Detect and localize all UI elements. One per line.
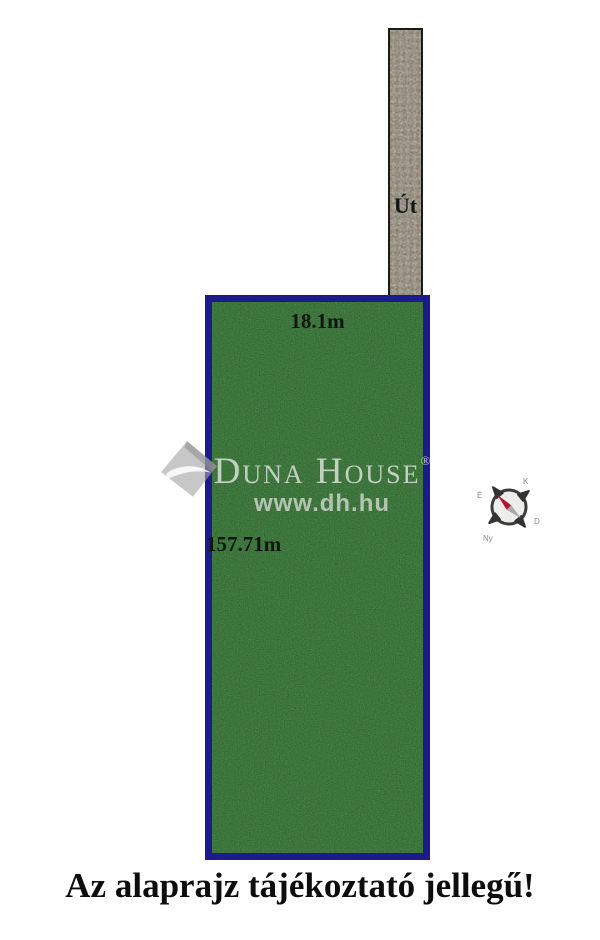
compass-icon: É K D Ny (471, 469, 547, 545)
compass-east-label: K (523, 477, 529, 486)
disclaimer-text: Az alaprajz tájékoztató jellegű! (0, 866, 600, 906)
compass-north-label: É (477, 491, 482, 500)
duna-house-logo-icon (158, 438, 220, 500)
compass-south-label: D (534, 517, 540, 526)
site-plan-image: Út 18.1m 157.71m (0, 0, 600, 940)
grass-texture (212, 302, 423, 853)
road-strip: Út (388, 28, 423, 298)
road-texture (390, 30, 421, 298)
compass-west-label: Ny (483, 534, 493, 543)
road-label: Út (390, 193, 421, 219)
plot-rectangle: 18.1m 157.71m (205, 295, 430, 860)
plot-depth-dimension: 157.71m (206, 532, 281, 557)
plot-width-dimension: 18.1m (212, 309, 423, 334)
